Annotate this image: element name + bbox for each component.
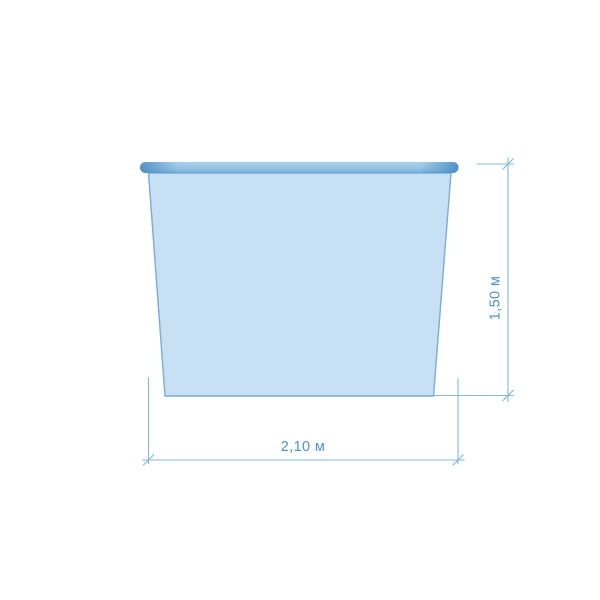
diagram-canvas: 2,10 м 1,50 м — [0, 0, 600, 600]
width-dimension-label: 2,10 м — [281, 439, 326, 455]
container-body — [149, 173, 452, 396]
container-dimension-diagram: 2,10 м 1,50 м — [0, 0, 600, 600]
height-dimension-label: 1,50 м — [488, 276, 504, 321]
container-rim-end-shading — [140, 162, 459, 173]
